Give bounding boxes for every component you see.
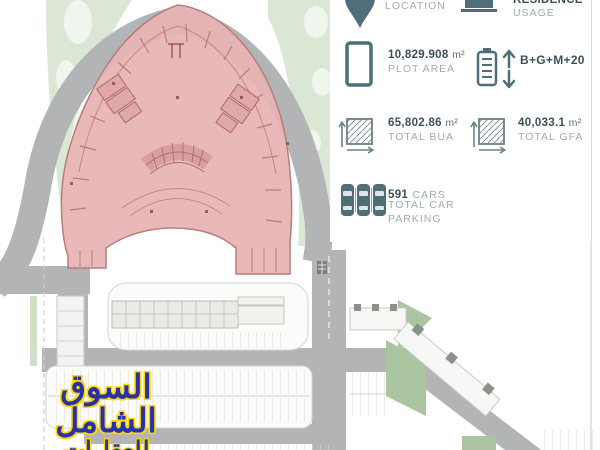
bua-area-icon (338, 113, 378, 155)
gfa-value: 40,033.1 m² (518, 117, 582, 129)
up-down-arrows-icon (500, 47, 518, 91)
floors-value: B+G+M+20 (520, 53, 585, 67)
parking-label-line2: PARKING (388, 213, 441, 225)
floors-levels-icon (475, 46, 499, 88)
usage-value: RESIDENCE (513, 0, 583, 6)
location-pin-icon (343, 0, 377, 30)
parking-label-line1: TOTAL CAR (388, 199, 455, 211)
watermark-line2: للعقارات (6, 438, 206, 450)
usage-label: USAGE (513, 7, 555, 19)
plot-area-value: 10,829.908 m² (388, 49, 465, 61)
bua-value: 65,802.86 m² (388, 117, 458, 129)
gfa-label: TOTAL GFA (518, 131, 583, 143)
bua-label: TOTAL BUA (388, 131, 454, 143)
parking-canopy (112, 301, 238, 328)
gfa-area-icon (470, 113, 510, 155)
cars-parking-icon (340, 182, 388, 218)
watermark-line1: السوق الشامل (6, 370, 206, 438)
plot-area-icon (344, 40, 374, 88)
stats-panel: LOCATION RESIDENCE USAGE 10,829.908 m² P… (330, 0, 592, 242)
listing-image: LOCATION RESIDENCE USAGE 10,829.908 m² P… (0, 0, 600, 450)
location-label: LOCATION (385, 0, 446, 12)
plot-area-label: PLOT AREA (388, 63, 455, 75)
watermark: السوق الشامل للعقارات (6, 370, 206, 450)
residence-building-icon (460, 0, 500, 14)
